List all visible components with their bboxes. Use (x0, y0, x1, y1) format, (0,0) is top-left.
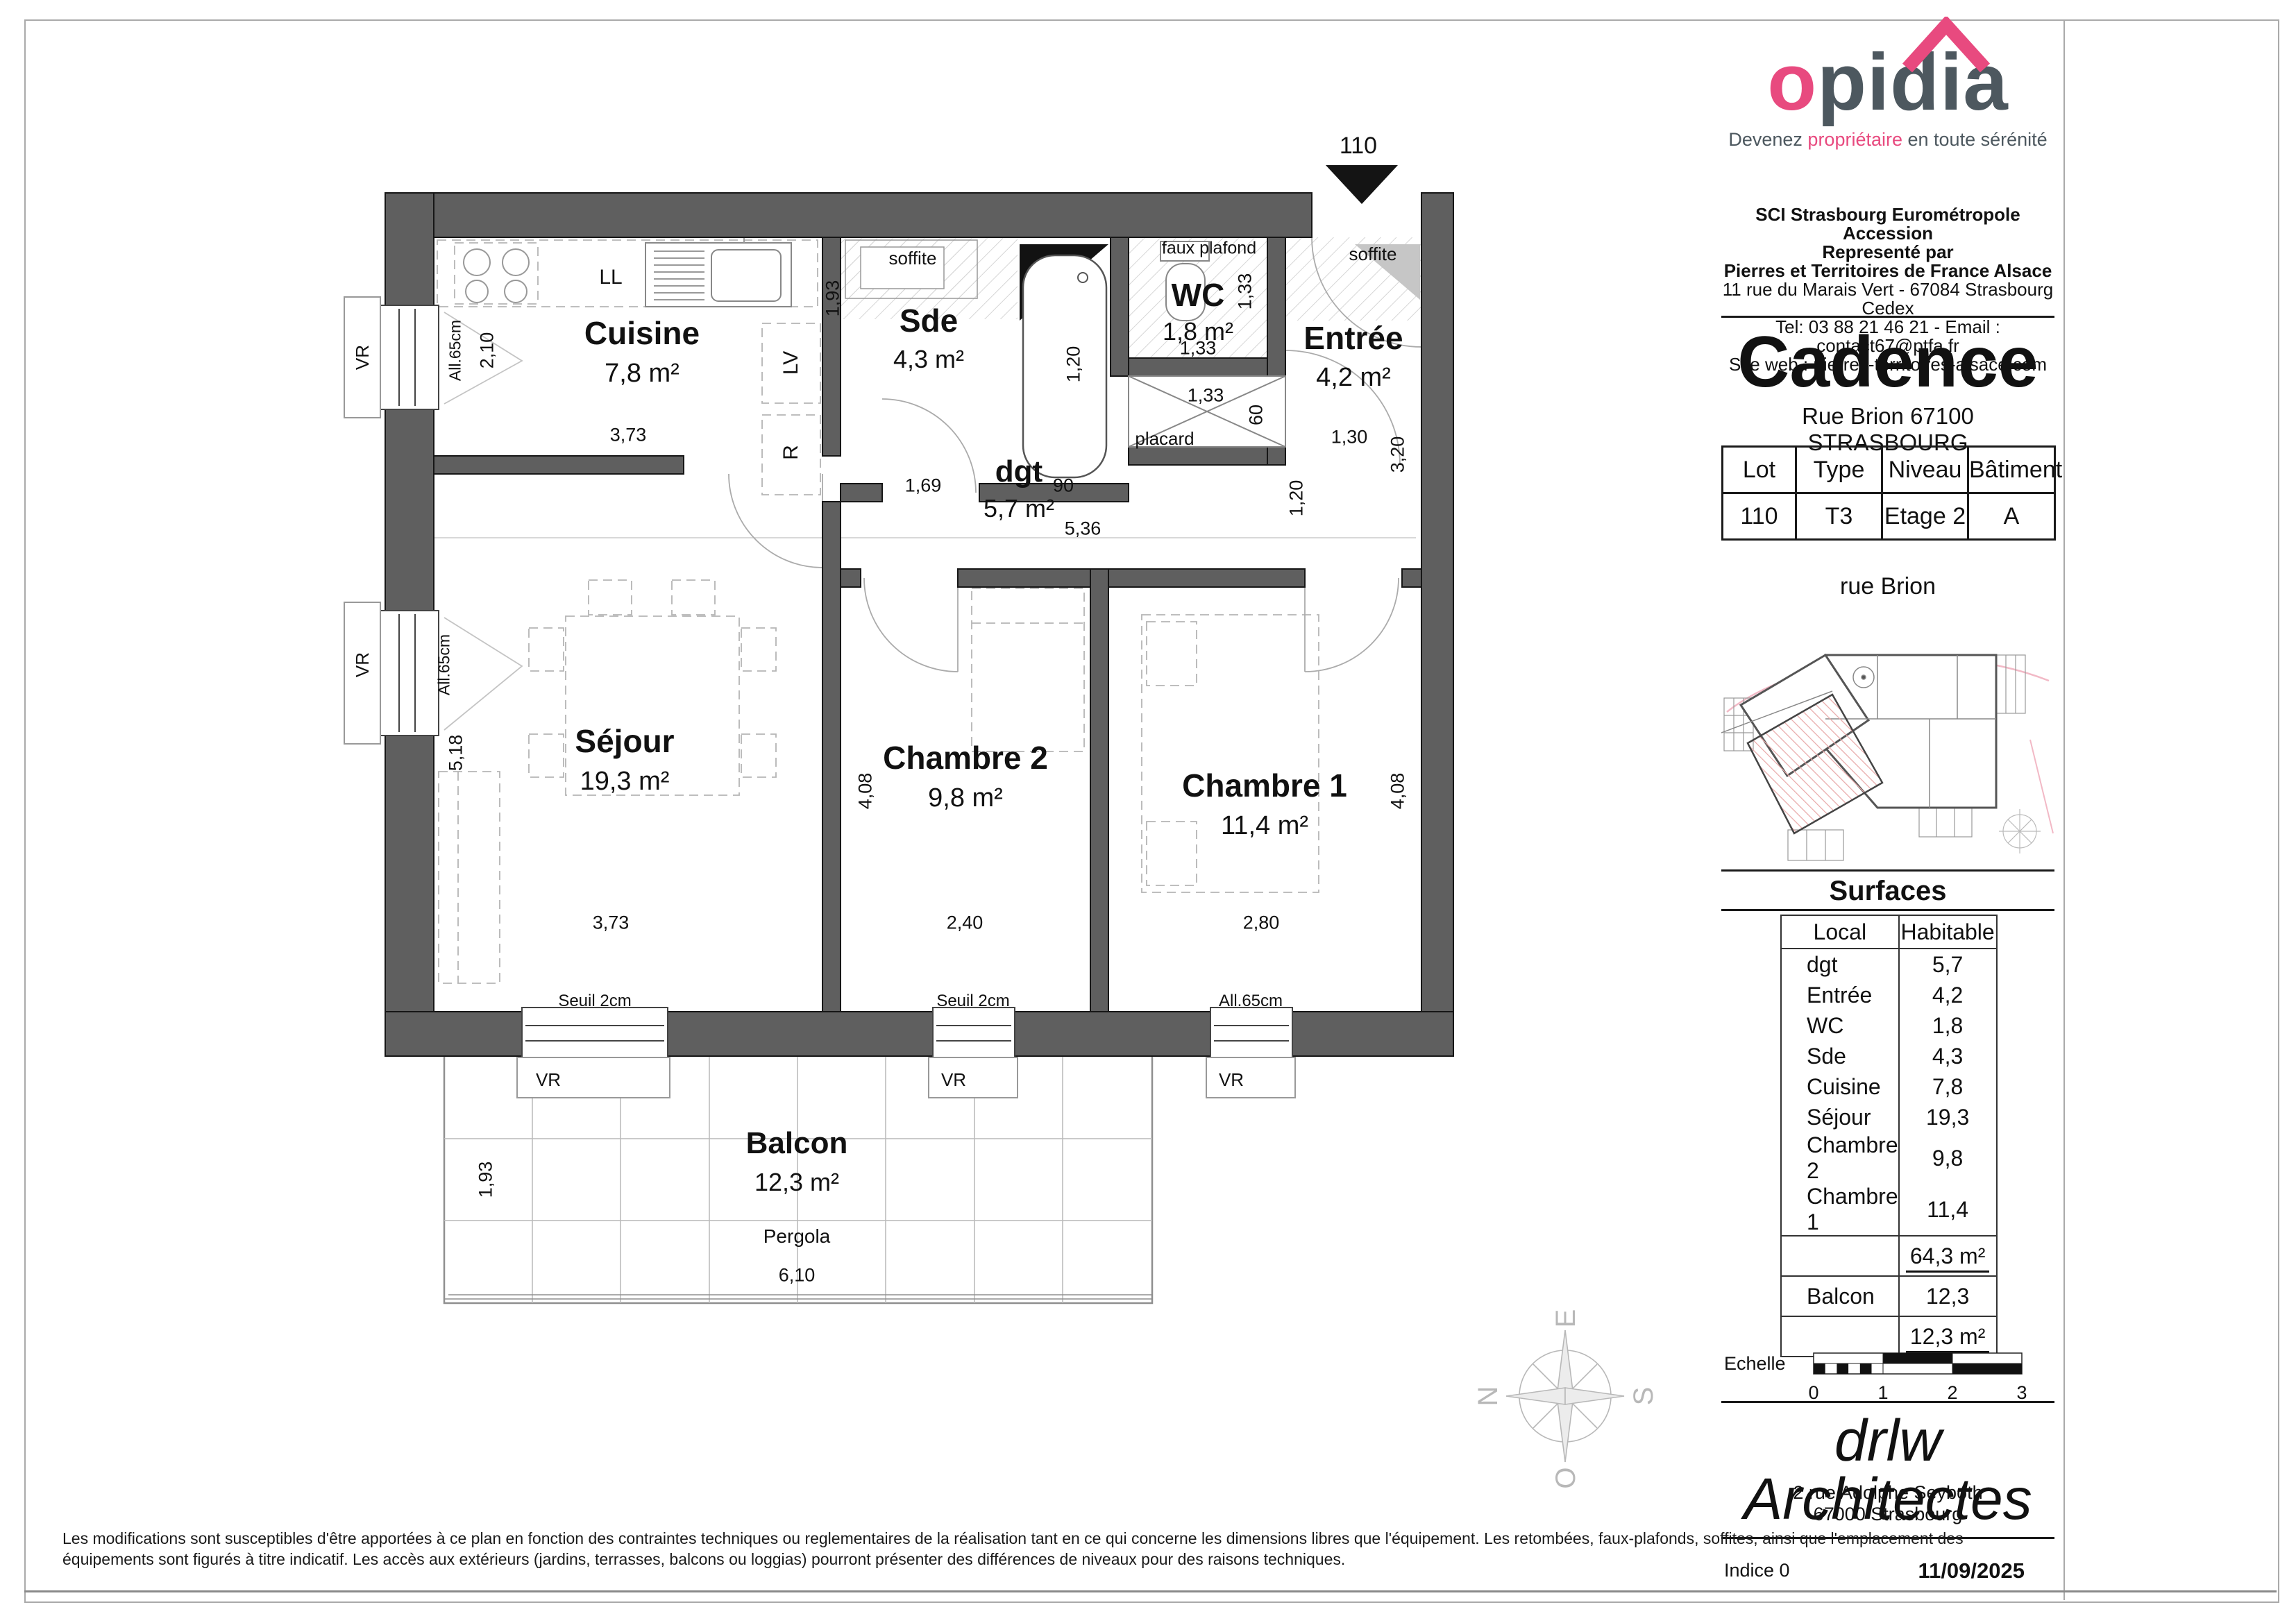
dim-chambre1-depth: 4,08 (1389, 773, 1408, 810)
dim-balcon-depth: 1,93 (477, 1162, 496, 1198)
surfaces-row-2-local: WC (1781, 1010, 1899, 1041)
surfaces-table: Local Habitable dgt5,7Entrée4,2WC1,8Sde4… (1780, 915, 1998, 1357)
label-allege-chambre1: All.65cm (1219, 993, 1283, 1010)
entrance-arrow-icon (1326, 165, 1398, 204)
label-allege-cuisine: All.65cm (448, 320, 464, 381)
promoter-line4: 11 rue du Marais Vert - 67084 Strasbourg… (1721, 280, 2054, 318)
surfaces-balcon-value: 12,3 (1899, 1276, 1997, 1316)
scalebar-tick-0: 0 (1793, 1382, 1834, 1404)
area-chambre2: 9,8 m² (928, 785, 1003, 811)
lot-table: LotTypeNiveauBâtiment 110T3Etage 2A (1721, 445, 2056, 541)
siteplan-compass-icon (1999, 809, 2041, 853)
surfaces-row-3-value: 4,3 (1899, 1041, 1997, 1071)
lot-header-1: Type (1796, 447, 1882, 493)
dim-cuisine-width: 3,73 (610, 426, 647, 445)
label-soffite-sde: soffite (889, 249, 937, 267)
logo-tagline: Devenez propriétaire en toute sérénité (1721, 129, 2054, 151)
dim-dgt-height: 1,20 (1288, 480, 1306, 517)
surfaces-row-5-value: 19,3 (1899, 1102, 1997, 1132)
architect-address-line2: 67000 Strasbourg (1721, 1504, 2054, 1525)
surfaces-row-7-local: Chambre 1 (1781, 1184, 1899, 1236)
surfaces-total-row: 64,3 m² (1781, 1236, 1997, 1276)
dim-entree-depth: 3,20 (1389, 436, 1408, 473)
label-vr-win-chambre2: VR (941, 1071, 966, 1089)
disclaimer-line2: équipements sont figurés à titre indicat… (62, 1550, 1345, 1569)
area-entree: 4,2 m² (1316, 364, 1391, 391)
label-vr-win-chambre1: VR (1219, 1071, 1244, 1089)
lot-value-0: 110 (1723, 493, 1796, 540)
surfaces-row-5-local: Séjour (1781, 1102, 1899, 1132)
dim-sejour-width: 3,73 (593, 914, 630, 933)
dim-sde-width: 1,69 (905, 477, 942, 495)
dim-douche-width: 90 (1053, 477, 1074, 495)
dim-chambre2-width: 2,40 (947, 914, 984, 933)
compass-right-label: S (1628, 1387, 1659, 1406)
surfaces-row-1-value: 4,2 (1899, 980, 1997, 1010)
architect-address: 2 rue Adolphe Seyboth 67000 Strasbourg (1721, 1482, 2054, 1525)
room-chambre2: Chambre 2 (883, 742, 1048, 774)
surfaces-row-0-local: dgt (1781, 949, 1899, 980)
lot-value-2: Etage 2 (1882, 493, 1968, 540)
surfaces-row-2-value: 1,8 (1899, 1010, 1997, 1041)
promoter-line2: Representé par (1721, 243, 2054, 262)
room-wc: WC (1172, 279, 1225, 311)
scalebar-ticks: 0123 (1814, 1382, 2036, 1404)
label-pergola: Pergola (763, 1227, 831, 1246)
surfaces-title: Surfaces (1721, 876, 2054, 907)
appliance-lv: LV (781, 351, 802, 375)
surfaces-row-1-local: Entrée (1781, 980, 1899, 1010)
surfaces-row-5: Séjour19,3 (1781, 1102, 1997, 1132)
siteplan-graphic (1721, 601, 2054, 870)
surfaces-col-local: Local (1781, 915, 1899, 949)
dim-balcon-width: 6,10 (779, 1266, 816, 1285)
room-chambre1: Chambre 1 (1182, 770, 1347, 801)
surfaces-row-0-value: 5,7 (1899, 949, 1997, 980)
surfaces-row-4: Cuisine7,8 (1781, 1071, 1997, 1102)
lot-value-1: T3 (1796, 493, 1882, 540)
dim-placard-width: 1,33 (1188, 386, 1224, 405)
dim-sejour-depth: 5,18 (447, 735, 466, 772)
room-entree: Entrée (1303, 322, 1403, 354)
promoter-line1: SCI Strasbourg Eurométropole Accession (1721, 205, 2054, 243)
room-sde: Sde (900, 305, 958, 337)
lot-header-0: Lot (1723, 447, 1796, 493)
dim-dgt-width: 5,36 (1065, 520, 1101, 538)
room-balcon: Balcon (746, 1128, 848, 1159)
surfaces-row-3-local: Sde (1781, 1041, 1899, 1071)
dim-placard-depth: 60 (1247, 405, 1266, 425)
dim-chambre1-width: 2,80 (1243, 914, 1280, 933)
surfaces-row-6-value: 9,8 (1899, 1132, 1997, 1184)
label-vr-win-sejour: VR (536, 1071, 561, 1089)
dim-wc-depth: 1,33 (1236, 273, 1255, 310)
label-seuil-chambre2: Seuil 2cm (936, 993, 1009, 1010)
label-seuil-sejour: Seuil 2cm (558, 993, 631, 1010)
area-sde: 4,3 m² (893, 347, 964, 372)
kitchen-fixtures (464, 230, 791, 307)
label-faux-plafond: faux plafond (1162, 240, 1256, 257)
label-soffite-entree: soffite (1349, 245, 1397, 263)
surfaces-row-1: Entrée4,2 (1781, 980, 1997, 1010)
scalebar-label: Echelle (1724, 1353, 1786, 1375)
surfaces-balcon-label: Balcon (1781, 1276, 1899, 1316)
siteplan-title: rue Brion (1721, 573, 2054, 600)
floorplan-sheet: E S O N 110Cuisine7,8 m²3,73LLLVR2,10All… (0, 0, 2296, 1623)
surfaces-total-habitable: 64,3 m² (1906, 1243, 1989, 1273)
logo-letter-o: o (1767, 37, 1817, 127)
scalebar-tick-2: 2 (1932, 1382, 1973, 1404)
area-cuisine: 7,8 m² (605, 360, 679, 386)
area-chambre1: 11,4 m² (1221, 813, 1308, 839)
appliance-ll: LL (599, 267, 622, 288)
logo: opidia Devenez propriétaire en toute sér… (1721, 42, 2054, 151)
lot-value-3: A (1968, 493, 2055, 540)
logo-wordmark: opidia (1721, 42, 2054, 122)
lot-header-3: Bâtiment (1968, 447, 2055, 493)
dim-douche-length: 1,20 (1065, 346, 1083, 383)
label-vr-cuisine: VR (353, 345, 371, 370)
compass-top-label: E (1551, 1309, 1581, 1328)
surfaces-row-7: Chambre 111,4 (1781, 1184, 1997, 1236)
area-sejour: 19,3 m² (580, 768, 670, 794)
dim-cuisine-depth: 2,10 (478, 332, 497, 369)
compass-bottom-label: O (1551, 1467, 1581, 1488)
footer-indice: Indice 0 (1724, 1560, 1790, 1581)
lot-table-value-row: 110T3Etage 2A (1723, 493, 2055, 540)
surfaces-col-habitable: Habitable (1899, 915, 1997, 949)
room-cuisine: Cuisine (584, 317, 700, 349)
footer-date: 11/09/2025 (1874, 1558, 2025, 1583)
surfaces-row-7-value: 11,4 (1899, 1184, 1997, 1236)
lot-header-2: Niveau (1882, 447, 1968, 493)
surfaces-row-6-local: Chambre 2 (1781, 1132, 1899, 1184)
label-allege-sejour: All.65cm (437, 634, 453, 695)
scalebar-tick-3: 3 (2001, 1382, 2043, 1404)
surfaces-row-4-local: Cuisine (1781, 1071, 1899, 1102)
lot-number-marker: 110 (1340, 134, 1377, 158)
dim-entree-width: 1,30 (1331, 428, 1368, 447)
promoter-line3: Pierres et Territoires de France Alsace (1721, 262, 2054, 280)
logo-roof-icon (1900, 17, 1992, 72)
surfaces-balcon-row: Balcon 12,3 (1781, 1276, 1997, 1316)
room-sejour: Séjour (575, 725, 674, 757)
architect-address-line1: 2 rue Adolphe Seyboth (1721, 1482, 2054, 1504)
dim-sde-depth: 1,93 (824, 280, 843, 317)
disclaimer-line1: Les modifications sont susceptibles d'êt… (62, 1529, 1964, 1548)
label-placard: placard (1135, 430, 1194, 448)
surfaces-row-0: dgt5,7 (1781, 949, 1997, 980)
surfaces-row-4-value: 7,8 (1899, 1071, 1997, 1102)
project-block: Cadence Rue Brion 67100 STRASBOURG (1721, 325, 2054, 456)
label-vr-sejour: VR (353, 652, 371, 677)
surfaces-row-6: Chambre 29,8 (1781, 1132, 1997, 1184)
room-dgt: dgt (995, 457, 1043, 487)
project-title: Cadence (1721, 325, 2054, 400)
dim-wc-width: 1,33 (1180, 339, 1217, 358)
scalebar-tick-1: 1 (1862, 1382, 1904, 1404)
surfaces-row-2: WC1,8 (1781, 1010, 1997, 1041)
area-dgt: 5,7 m² (984, 496, 1054, 521)
compass-left-label: N (1473, 1386, 1503, 1407)
appliance-r: R (781, 445, 802, 460)
surfaces-row-3: Sde4,3 (1781, 1041, 1997, 1071)
scalebar-graphic (1807, 1349, 2029, 1378)
dim-chambre2-depth: 4,08 (856, 773, 875, 810)
area-balcon: 12,3 m² (754, 1170, 839, 1195)
compass-rose-icon: E S O N (1473, 1309, 1659, 1489)
lot-table-header-row: LotTypeNiveauBâtiment (1723, 447, 2055, 493)
